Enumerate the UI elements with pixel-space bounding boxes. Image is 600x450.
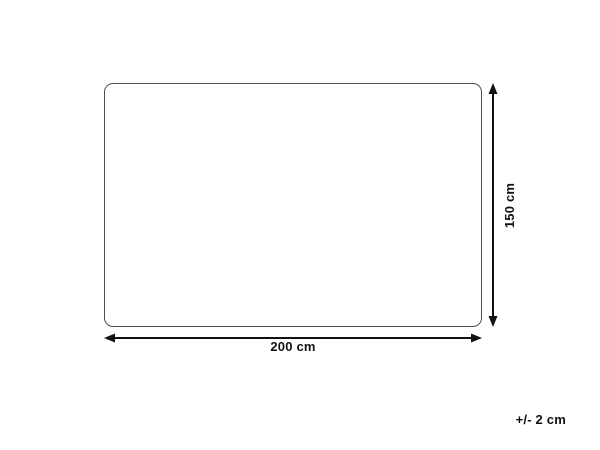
arrowhead-up-icon bbox=[489, 83, 498, 94]
width-dimension-label: 200 cm bbox=[104, 339, 482, 354]
height-dimension-label-box: 150 cm bbox=[498, 83, 522, 327]
tolerance-label: +/- 2 cm bbox=[516, 412, 566, 427]
product-outline bbox=[104, 83, 482, 327]
height-dimension-label: 150 cm bbox=[503, 182, 518, 227]
arrowhead-down-icon bbox=[489, 316, 498, 327]
dimension-diagram: 200 cm 150 cm +/- 2 cm bbox=[0, 0, 600, 450]
